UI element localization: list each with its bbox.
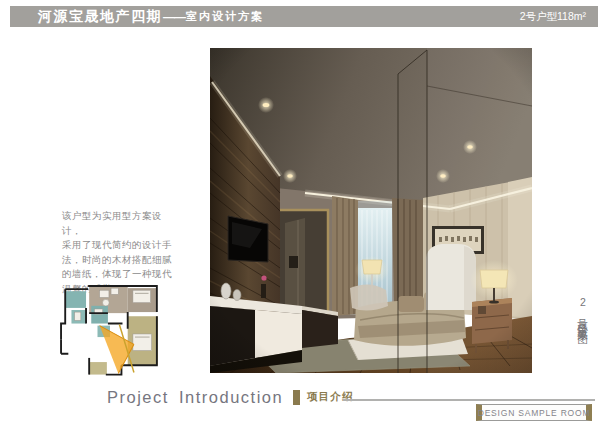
floor-plan-drawing	[60, 285, 160, 377]
section-title-en: Project Introduction	[107, 388, 283, 407]
bronze-divider-bar	[293, 390, 300, 405]
floor-plan	[60, 285, 160, 376]
photo-caption-vertical: 2号楼卧室效果图	[576, 296, 590, 400]
vignette	[210, 48, 532, 373]
design-sample-room-stamp: DESIGN SAMPLE ROOM	[476, 404, 592, 421]
description-line: 该户型为实用型方案设计，	[62, 209, 180, 238]
project-title: 河源宝晟地产四期	[38, 8, 162, 26]
footer-rule	[343, 399, 595, 401]
unit-type-label: 2号户型118m²	[520, 10, 586, 24]
header-subtitle: 室内设计方案	[186, 9, 264, 24]
section-title: Project Introduction 项目介绍	[107, 388, 353, 406]
bedroom-scene	[210, 48, 532, 373]
presentation-slide: 河源宝晟地产四期 —— 室内设计方案 2号户型118m² 该户型为实用型方案设计…	[0, 0, 600, 424]
title-dash: ——	[163, 10, 185, 24]
description-line: 采用了现代简约的设计手	[62, 238, 180, 253]
description-line: 法，时尚的木材搭配细腻	[62, 253, 180, 268]
description-line: 的墙纸，体现了一种现代	[62, 267, 180, 282]
design-description: 该户型为实用型方案设计， 采用了现代简约的设计手 法，时尚的木材搭配细腻 的墙纸…	[62, 209, 180, 296]
header-bar: 河源宝晟地产四期 —— 室内设计方案 2号户型118m²	[10, 6, 598, 27]
bedroom-rendering-photo	[210, 48, 532, 373]
section-title-cn: 项目介绍	[307, 390, 353, 404]
